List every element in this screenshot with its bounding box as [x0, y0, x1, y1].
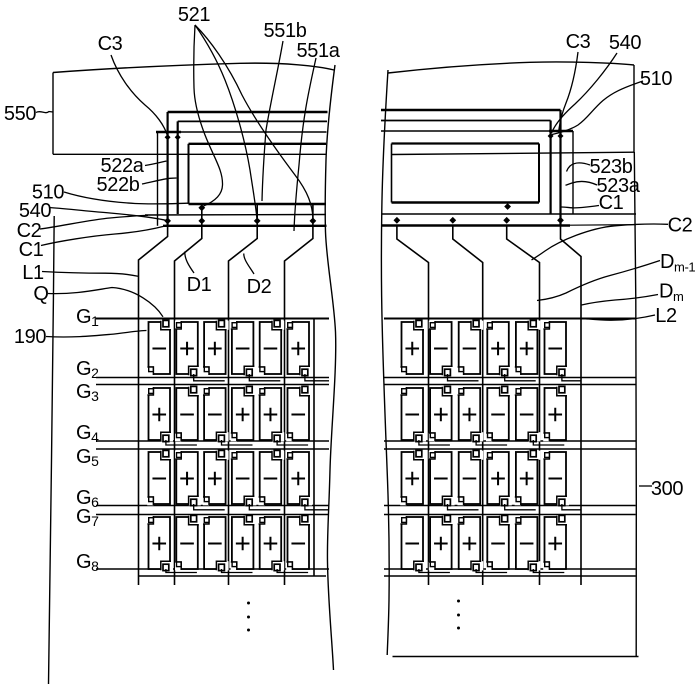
svg-text:551b: 551b — [264, 20, 307, 42]
svg-text:C3: C3 — [98, 33, 123, 55]
svg-text:C1: C1 — [19, 239, 44, 261]
svg-text:L2: L2 — [655, 305, 677, 327]
svg-text:540: 540 — [609, 32, 641, 54]
svg-text:C3: C3 — [566, 31, 591, 53]
svg-text:C1: C1 — [599, 192, 624, 214]
svg-text:521: 521 — [178, 4, 210, 26]
svg-text:190: 190 — [14, 326, 46, 348]
svg-text:L1: L1 — [22, 262, 44, 284]
svg-text:551a: 551a — [297, 40, 341, 62]
svg-text:D1: D1 — [187, 274, 212, 296]
svg-text:510: 510 — [640, 68, 672, 90]
svg-text:522b: 522b — [97, 174, 140, 196]
svg-text:C2: C2 — [668, 215, 693, 237]
svg-text:Q: Q — [33, 283, 48, 305]
svg-text:540: 540 — [19, 200, 51, 222]
svg-text:D2: D2 — [247, 276, 272, 298]
svg-text:550: 550 — [4, 103, 36, 125]
svg-text:300: 300 — [651, 478, 683, 500]
